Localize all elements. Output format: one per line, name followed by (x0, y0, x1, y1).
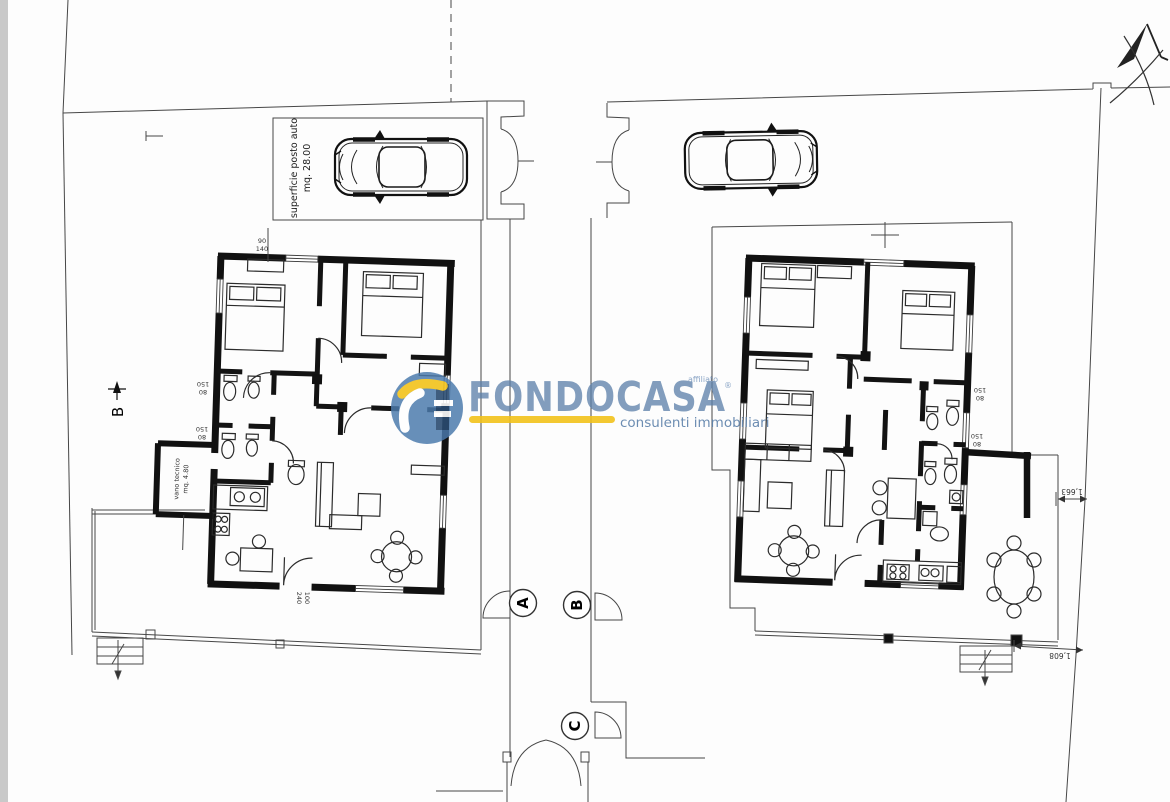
bed (361, 272, 423, 338)
gate-a-swing (483, 591, 510, 618)
parking-label-line2: mq. 28.00 (302, 144, 313, 193)
floor-plan-page: A B C superficie posto auto mq. 28.00 (0, 0, 1170, 802)
bidet (248, 382, 259, 398)
benchmark-mark (146, 131, 163, 141)
front-door-right (835, 554, 862, 581)
toilet (946, 407, 959, 425)
left-floor-plan: vano tecnico mq. 4.80 80 150 80 150 90 1… (92, 220, 481, 679)
svg-text:140: 140 (256, 245, 268, 253)
outdoor-table (994, 550, 1034, 604)
logo-underline (469, 416, 615, 423)
pergola-walls (963, 452, 1031, 518)
svg-text:80: 80 (976, 394, 984, 402)
svg-text:240: 240 (295, 592, 303, 604)
driveway-and-gates: A B C (436, 101, 705, 802)
car-icon-right (684, 122, 817, 198)
tv-unit (825, 470, 845, 527)
dining-table (381, 541, 412, 572)
sink (952, 493, 960, 501)
stairs-left (97, 638, 143, 679)
section-arrow-icon (113, 381, 121, 393)
desk (756, 359, 808, 370)
boundary-dim-lower: 1,608 (1049, 651, 1071, 660)
car-icon-left (335, 130, 467, 204)
gate-c-swing (595, 712, 621, 738)
stairs-right (960, 646, 1012, 685)
bidet (925, 468, 937, 484)
tech-room: vano tecnico mq. 4.80 (155, 443, 215, 551)
svg-text:100: 100 (303, 592, 311, 604)
left-parking-space: superficie posto auto mq. 28.00 (273, 118, 483, 220)
washer (923, 511, 937, 525)
right-floor-plan: 80 150 80 150 1,663 1,608 (712, 222, 1087, 685)
bidet (246, 440, 257, 456)
coffee-table (767, 482, 792, 509)
svg-text:150: 150 (197, 380, 209, 388)
bed (760, 264, 816, 328)
tv-cabinet (411, 465, 444, 475)
fondocasa-watermark: FONDOCASA affiliato ® consulenti immobil… (391, 372, 769, 444)
scan-edge (0, 0, 8, 802)
right-parking-space (684, 122, 817, 198)
svg-text:80: 80 (198, 433, 206, 441)
gate-markers: A B C (510, 590, 591, 740)
table (887, 478, 916, 519)
gate-marker-a-label: A (514, 597, 532, 609)
svg-text:150: 150 (971, 432, 983, 440)
sofa (315, 462, 333, 526)
bed (901, 290, 955, 350)
north-arrow-icon (1110, 24, 1168, 105)
basin (930, 527, 948, 542)
armchair (358, 494, 381, 517)
gate-marker-c-label: C (566, 720, 584, 731)
tech-room-label-line2: mq. 4.80 (181, 464, 190, 493)
svg-text:150: 150 (974, 386, 986, 394)
parking-label-line1: superficie posto auto (289, 118, 300, 218)
front-door-left (284, 557, 313, 586)
boundary-dim-upper: 1,663 (1061, 487, 1083, 496)
dimension-labels-right: 80 150 80 150 (971, 386, 986, 448)
tech-room-label-line1: vano tecnico (172, 458, 181, 500)
svg-text:150: 150 (196, 425, 208, 433)
section-marker-label: B (109, 407, 127, 417)
svg-text:80: 80 (199, 388, 207, 396)
toilet (222, 440, 235, 458)
dim-leader (871, 222, 899, 248)
logo-tagline: consulenti immobiliari (620, 415, 769, 431)
gate-marker-b-label: B (568, 599, 586, 610)
bidet (927, 413, 939, 429)
dining-table (778, 535, 809, 566)
bed (225, 283, 285, 351)
bottom-gate-swing (511, 740, 581, 786)
furniture-right-house (741, 263, 972, 584)
gate-b-swing (595, 593, 622, 620)
sink (288, 464, 305, 484)
svg-text:80: 80 (973, 440, 981, 448)
logo-affiliate-label: affiliato (688, 375, 718, 384)
site-plan-drawing: A B C superficie posto auto mq. 28.00 (0, 0, 1170, 802)
kitchen-sink (230, 488, 265, 507)
table (240, 548, 273, 572)
logo-registered-mark: ® (724, 381, 732, 390)
toilet (223, 382, 236, 400)
outdoor-dining-set (987, 536, 1041, 618)
windows-right-house (735, 255, 975, 590)
svg-text:90: 90 (258, 237, 266, 245)
toilet (944, 465, 957, 483)
section-marker: B (108, 381, 127, 417)
